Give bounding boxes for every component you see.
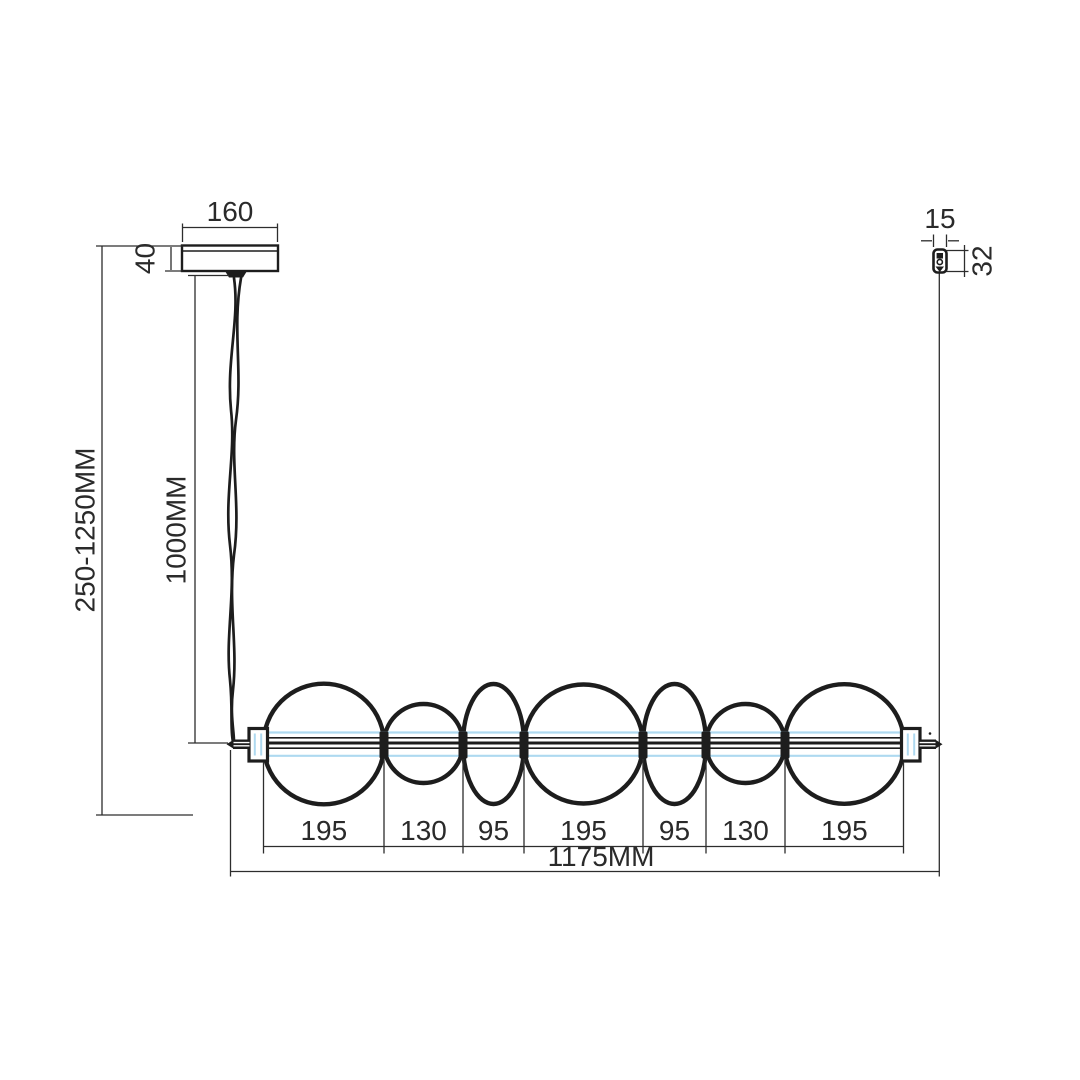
segment-label-7: 195 (821, 815, 868, 846)
segment-label-3: 95 (478, 815, 509, 846)
dim-overall-length-label: 1175MM (548, 841, 655, 872)
segment-label-2: 130 (400, 815, 447, 846)
dim-canopy-height-label: 40 (129, 243, 160, 274)
end-cap-right (902, 729, 921, 762)
connector-6 (781, 732, 790, 759)
wire-grip-screw (937, 259, 942, 264)
reference-dot (929, 732, 932, 735)
canopy-strain-relief (225, 271, 247, 278)
dim-canopy-width: 160 (183, 196, 278, 242)
canopy-body (182, 246, 278, 272)
wire-grip (934, 250, 947, 273)
pin-body (233, 740, 250, 750)
dim-cable-length-label: 1000MM (160, 476, 191, 585)
ceiling-canopy (182, 246, 278, 278)
fixture (227, 684, 943, 805)
connector-4 (639, 732, 648, 759)
dim-wire-grip-width-label: 15 (924, 203, 955, 234)
end-pin-left (227, 740, 250, 750)
dim-wire-grip-height: 32 (947, 245, 998, 277)
pendant-light-dimension-drawing: 160 40 250-1250MM 1000MM 15 (0, 0, 1080, 1080)
end-cap-left (249, 729, 268, 762)
segment-label-5: 95 (659, 815, 690, 846)
pin-tip (227, 740, 234, 749)
segment-label-1: 195 (300, 815, 347, 846)
connector-1 (380, 732, 389, 759)
dim-canopy-width-label: 160 (207, 196, 254, 227)
connector-2 (459, 732, 468, 759)
dim-canopy-height: 40 (129, 243, 182, 274)
suspension-cable (228, 278, 241, 742)
dim-wire-grip-width: 15 (921, 203, 959, 247)
segment-label-6: 130 (722, 815, 769, 846)
pin-body (920, 740, 937, 750)
connector-5 (702, 732, 711, 759)
dim-wire-grip-height-label: 32 (966, 245, 997, 276)
wire-grip-slot (937, 253, 943, 259)
dim-suspension-range-label: 250-1250MM (69, 448, 100, 613)
dim-cable-length: 1000MM (160, 276, 229, 744)
connector-3 (520, 732, 529, 759)
